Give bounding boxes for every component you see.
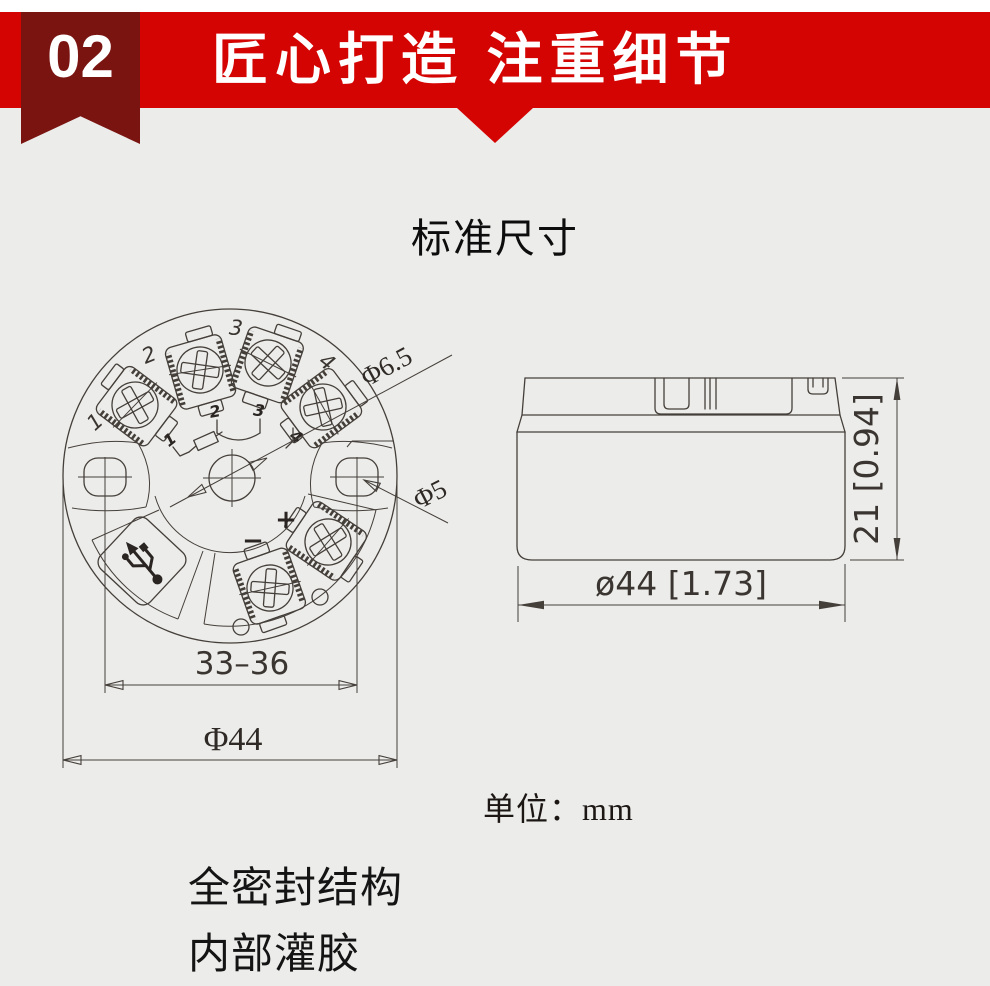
terminal-recess bbox=[655, 378, 792, 414]
banner-title: 匠心打造 注重细节 bbox=[212, 12, 739, 108]
banner-pointer-triangle bbox=[457, 108, 533, 143]
page-title: 标准尺寸 bbox=[0, 206, 990, 264]
center-hole bbox=[203, 449, 261, 507]
dim-center-hole-label: Φ6.5 bbox=[356, 341, 417, 393]
dim-side-hole-label: Φ5 bbox=[408, 473, 451, 515]
dimension-outer-diameter: Φ44 bbox=[63, 480, 397, 768]
dim-height-label: 21 [0.94] bbox=[847, 393, 886, 545]
dim-diameter-label: ø44 [1.73] bbox=[595, 564, 767, 603]
terminal-screw-minus bbox=[222, 534, 317, 638]
dim-outer-diameter-label: Φ44 bbox=[204, 721, 263, 758]
polarity-plus-label: + bbox=[275, 505, 297, 535]
schematic-label-3: 3 bbox=[252, 400, 266, 420]
side-body-outline bbox=[517, 378, 845, 560]
top-view-drawing: 1 2 3 4 1 2 3 4 + − bbox=[10, 300, 470, 780]
feature-text-2: 内部灌胶 bbox=[188, 920, 360, 981]
section-number-ribbon: 02 bbox=[21, 12, 140, 144]
unit-note: 单位：mm bbox=[483, 784, 634, 830]
dim-mount-span-label: 33–36 bbox=[195, 646, 289, 682]
housing-outline bbox=[63, 309, 397, 643]
side-clip bbox=[808, 378, 828, 394]
schematic-label-4: 4 bbox=[285, 425, 306, 448]
terminal-label-3: 3 bbox=[228, 315, 244, 340]
section-number: 02 bbox=[21, 22, 140, 91]
dimension-diameter: ø44 [1.73] bbox=[518, 564, 845, 622]
terminal-label-4: 4 bbox=[314, 348, 339, 375]
polarity-minus-label: − bbox=[242, 526, 264, 556]
schematic-label-1: 1 bbox=[159, 429, 179, 451]
schematic-label-2: 2 bbox=[208, 401, 222, 422]
side-view-drawing: 21 [0.94] ø44 [1.73] bbox=[500, 360, 920, 640]
terminal-screw-plus bbox=[271, 488, 381, 594]
usb-port bbox=[94, 513, 190, 609]
top-white-strip bbox=[0, 0, 990, 12]
leader-side-hole-dim: Φ5 bbox=[364, 473, 452, 523]
leader-center-hole-dim: Φ6.5 bbox=[170, 341, 452, 507]
usb-icon bbox=[116, 533, 171, 592]
terminal-label-2: 2 bbox=[138, 341, 159, 368]
side-mount-holes bbox=[78, 458, 384, 496]
feature-text-1: 全密封结构 bbox=[188, 854, 403, 915]
dimension-mount-span: 33–36 bbox=[105, 457, 357, 693]
dimension-height: 21 [0.94] bbox=[842, 378, 904, 560]
